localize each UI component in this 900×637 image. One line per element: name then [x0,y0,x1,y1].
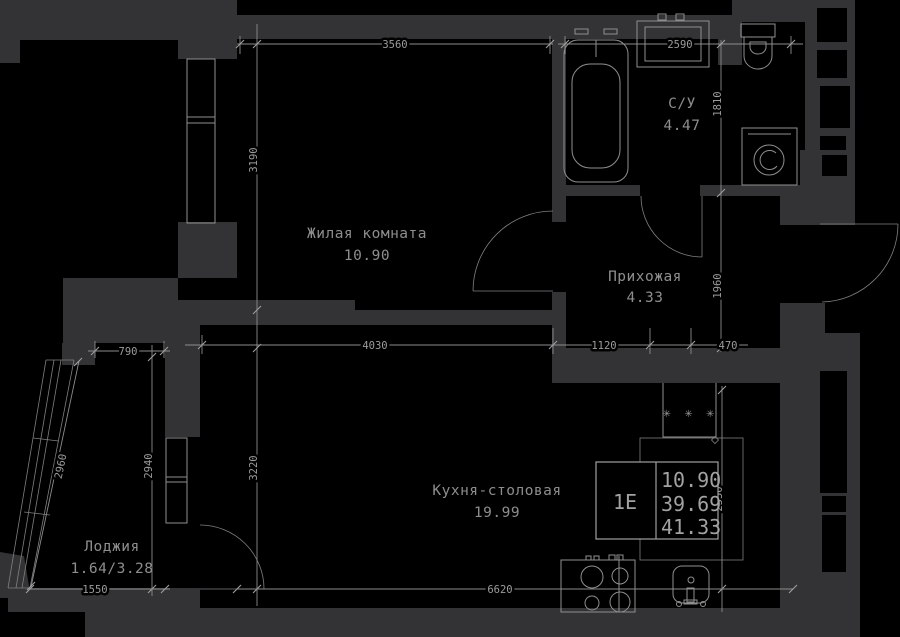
toilet-icon [741,24,775,69]
room-hall-name: Прихожая [608,269,682,285]
room-bath-name: С/У [668,96,696,112]
bathroom-door [641,196,702,257]
floor-plan-svg: ✳ ✳ ✳ [0,0,900,637]
dim-kitchen-top-b: 1120 [591,340,616,352]
room-kitchen-area: 19.99 [474,505,520,521]
fridge-marks: ✳ ✳ ✳ [663,406,717,421]
dim-bath-height: 1810 [712,91,724,116]
dim-kitchen-top-a: 4030 [362,340,387,352]
wall-niches [817,8,850,572]
stove-icon [561,555,635,612]
dim-loggia-top: 790 [119,346,138,358]
dim-kitchen-bottom: 6620 [487,584,512,596]
dim-bath-width: 2590 [667,39,692,51]
entrance-door [820,224,898,302]
dim-living-width: 3560 [382,39,407,51]
legend-total-area: 41.33 [661,515,721,539]
legend-unit-type: 1Е [613,490,637,514]
bathtub-icon [564,29,628,182]
room-loggia-area: 1.64/3.28 [70,561,153,577]
kitchen-sink-icon [673,566,709,607]
dim-loggia-bottom: 1550 [82,584,107,596]
dim-kitchen-top-c: 470 [719,340,738,352]
living-room-door [473,211,553,291]
washing-machine-icon [742,128,797,185]
living-room-window [187,59,215,223]
room-living-name: Жилая комната [307,226,427,242]
dim-kitchen-height: 3220 [248,455,260,480]
room-living-area: 10.90 [344,248,390,264]
kitchen-window [166,438,187,523]
room-kitchen-name: Кухня-столовая [432,483,561,499]
room-hall-area: 4.33 [627,290,664,306]
room-loggia-name: Лоджия [84,539,139,555]
fridge-niche: ✳ ✳ ✳ [663,383,719,444]
dim-hall-height: 1960 [712,273,724,298]
dim-loggia-height: 2940 [143,453,155,478]
dim-living-height: 3190 [248,147,260,172]
room-bath-area: 4.47 [664,118,701,134]
legend-table: 1Е 10.90 39.69 41.33 [596,462,721,539]
legend-living-area: 10.90 [661,468,721,492]
legend-area: 39.69 [661,492,721,516]
floor-plan-canvas: ✳ ✳ ✳ [0,0,900,637]
balcony-door [200,525,264,589]
